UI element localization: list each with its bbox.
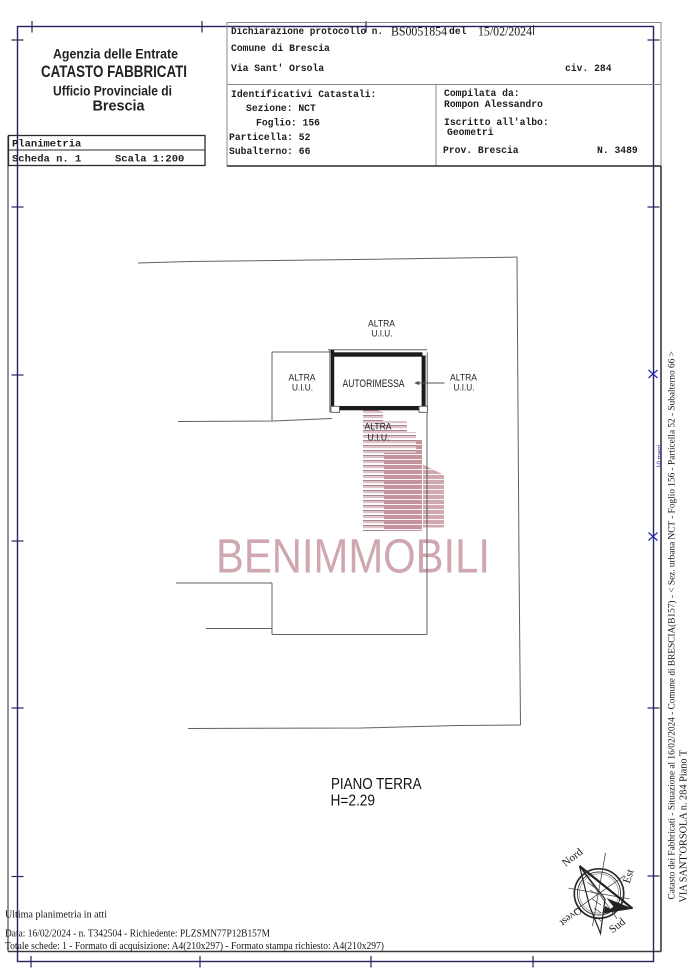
- svg-text:Ufficio Provinciale di: Ufficio Provinciale di: [53, 84, 172, 99]
- svg-text:ALTRA: ALTRA: [450, 373, 478, 383]
- svg-text:Agenzia delle Entrate: Agenzia delle Entrate: [53, 47, 178, 62]
- svg-text:AUTORIMESSA: AUTORIMESSA: [343, 378, 406, 390]
- svg-text:del: del: [449, 26, 467, 37]
- svg-text:VIA SANT'ORSOLA n. 284 Piano T: VIA SANT'ORSOLA n. 284 Piano T: [679, 749, 690, 902]
- svg-text:U.I.U.: U.I.U.: [368, 433, 390, 444]
- svg-text:Planimetria: Planimetria: [12, 139, 82, 151]
- svg-text:ALTRA: ALTRA: [365, 422, 393, 433]
- svg-text:Rompon Alessandro: Rompon Alessandro: [444, 99, 543, 110]
- svg-text:Dichiarazione protocollo n.: Dichiarazione protocollo n.: [231, 26, 383, 37]
- svg-text:U.I.U.: U.I.U.: [454, 383, 475, 393]
- svg-text:Scheda n. 1: Scheda n. 1: [12, 154, 81, 166]
- svg-text:Subalterno: 66: Subalterno: 66: [229, 146, 311, 157]
- svg-text:Particella: 52: Particella: 52: [229, 132, 311, 143]
- svg-text:Sezione: NCT: Sezione: NCT: [246, 103, 316, 114]
- svg-text:N. 3489: N. 3489: [597, 145, 638, 156]
- svg-text:BENIMMOBILI: BENIMMOBILI: [216, 531, 490, 584]
- svg-text:Via Sant' Orsola: Via Sant' Orsola: [231, 63, 324, 74]
- svg-text:civ. 284: civ. 284: [565, 63, 612, 74]
- svg-text:PIANO TERRA: PIANO TERRA: [331, 776, 422, 793]
- svg-text:Compilata da:: Compilata da:: [444, 88, 520, 99]
- svg-text:10 metri: 10 metri: [656, 444, 664, 468]
- svg-text:Scala 1:200: Scala 1:200: [115, 154, 184, 166]
- svg-text:Foglio: 156: Foglio: 156: [256, 118, 320, 129]
- svg-text:U.I.U.: U.I.U.: [372, 329, 393, 339]
- svg-text:Comune di Brescia: Comune di Brescia: [231, 43, 330, 54]
- svg-text:Brescia: Brescia: [93, 98, 146, 115]
- svg-text:Prov. Brescia: Prov. Brescia: [443, 145, 519, 156]
- svg-text:Totale schede: 1 - Formato di: Totale schede: 1 - Formato di acquisizio…: [5, 941, 384, 952]
- svg-text:H=2.29: H=2.29: [331, 793, 376, 810]
- svg-text:CATASTO FABBRICATI: CATASTO FABBRICATI: [41, 63, 187, 81]
- svg-text:Ultima planimetria in atti: Ultima planimetria in atti: [5, 910, 107, 921]
- svg-text:Data: 16/02/2024 - n. T342504: Data: 16/02/2024 - n. T342504 - Richiede…: [5, 929, 270, 940]
- svg-text:BS0051854: BS0051854: [391, 24, 447, 39]
- svg-text:ALTRA: ALTRA: [289, 373, 317, 383]
- svg-text:Geometri: Geometri: [447, 127, 494, 138]
- svg-text:Catasto dei Fabbricati - Situa: Catasto dei Fabbricati - Situazione al 1…: [667, 351, 678, 899]
- svg-text:ALTRA: ALTRA: [368, 319, 396, 329]
- svg-text:U.I.U.: U.I.U.: [292, 383, 313, 393]
- svg-text:Identificativi Catastali:: Identificativi Catastali:: [231, 89, 376, 100]
- svg-text:15/02/2024: 15/02/2024: [478, 24, 532, 39]
